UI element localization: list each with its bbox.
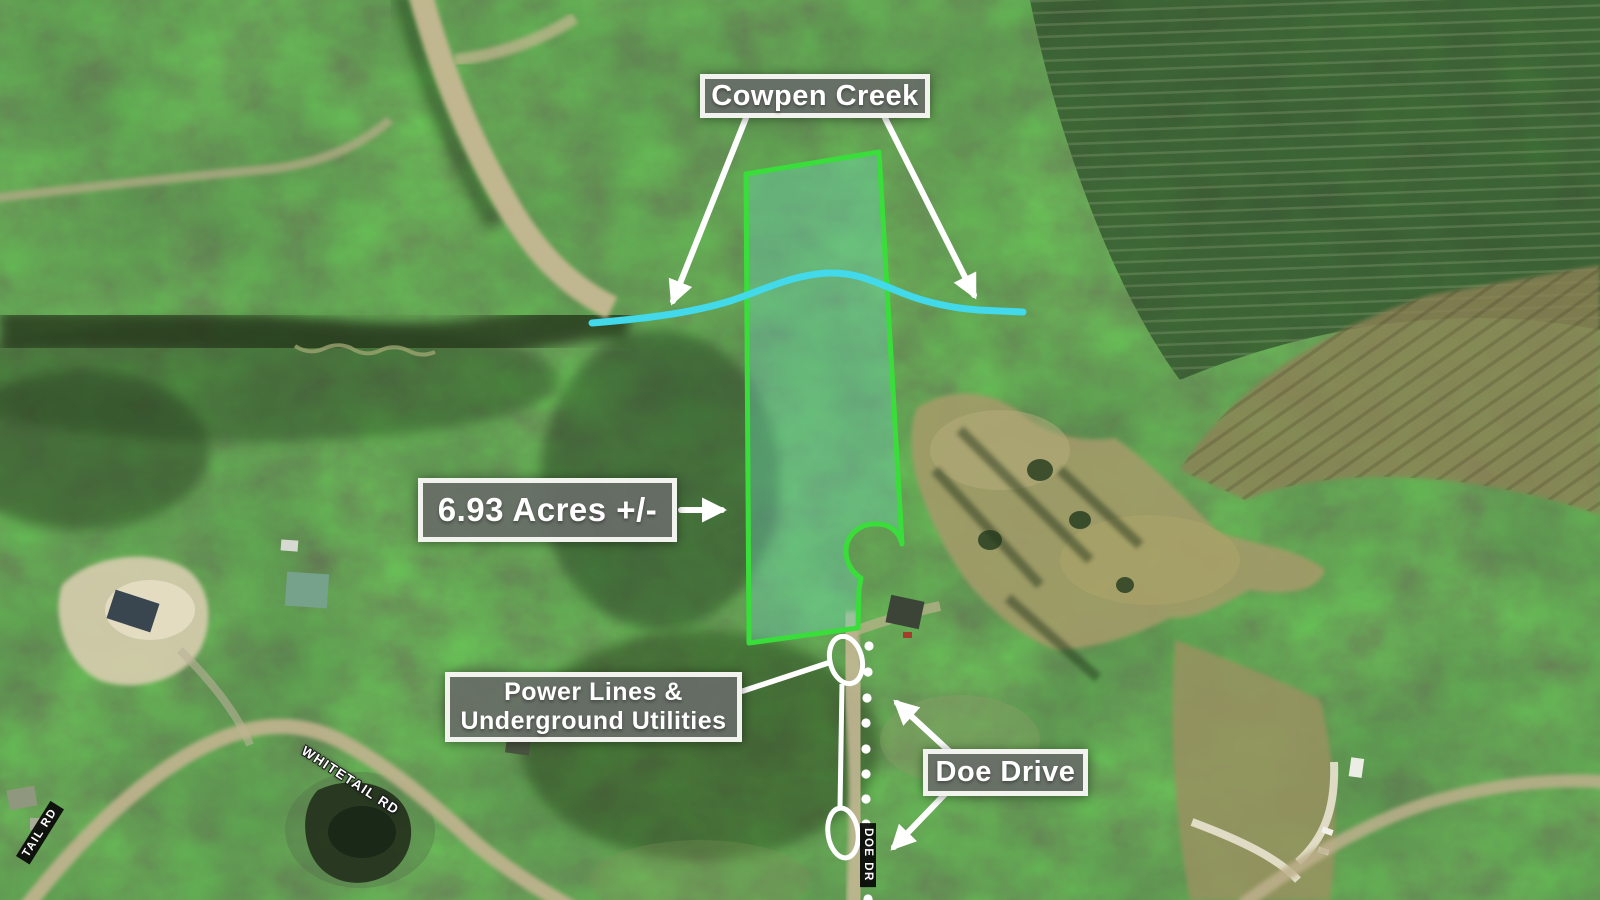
- utility-ellipse-top: [825, 633, 868, 687]
- street-name-doe-dr: DOE DR: [860, 823, 876, 887]
- doe-drive-arrow-upper: [897, 703, 949, 751]
- creek-label-text: Cowpen Creek: [711, 80, 918, 113]
- utilities-label: Power Lines & Underground Utilities: [445, 672, 742, 742]
- acreage-label: 6.93 Acres +/-: [418, 478, 677, 542]
- creek-arrow-right: [885, 118, 974, 295]
- doe-drive-label: Doe Drive: [923, 749, 1088, 796]
- creek-label: Cowpen Creek: [700, 74, 930, 118]
- doe-drive-arrow-lower: [894, 794, 945, 847]
- aerial-parcel-map: Cowpen Creek 6.93 Acres +/- Power Lines …: [0, 0, 1600, 900]
- annotation-overlay: [0, 0, 1600, 900]
- parcel-boundary: [746, 152, 902, 643]
- acreage-label-text: 6.93 Acres +/-: [438, 491, 658, 529]
- utility-ellipse-bottom: [825, 806, 862, 860]
- doe-drive-label-text: Doe Drive: [936, 756, 1076, 789]
- utilities-label-line2: Underground Utilities: [460, 707, 726, 736]
- utilities-label-line1: Power Lines &: [504, 678, 683, 707]
- utility-line: [840, 684, 842, 808]
- creek-arrow-left: [673, 118, 746, 301]
- utilities-connector-line: [743, 663, 828, 691]
